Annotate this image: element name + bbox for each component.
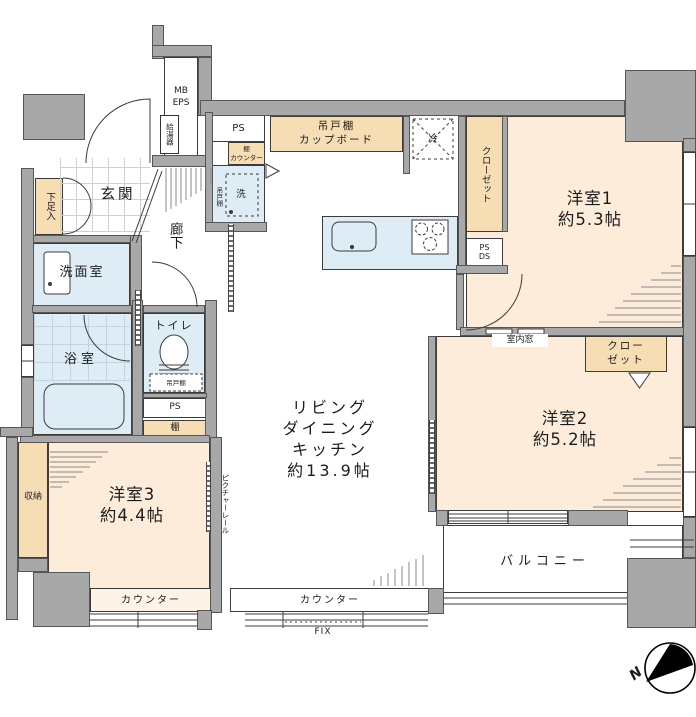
kitchen-counter xyxy=(322,216,458,270)
window-room2-balcony xyxy=(448,510,568,524)
wall-step-left xyxy=(0,427,33,437)
cupboard-label: 吊戸棚カップボード xyxy=(270,118,403,150)
wall-left-upper xyxy=(21,168,34,345)
closet1-label: クローゼット xyxy=(468,120,501,228)
shoe-cabinet-label: 下足入 xyxy=(37,180,61,233)
ps-mid-label: PS xyxy=(143,400,207,416)
wall-window-block1 xyxy=(197,610,212,630)
window-room1-right xyxy=(683,152,696,256)
compass-circle xyxy=(645,643,695,693)
ps-top-label: PS xyxy=(212,117,265,139)
pillar-top-right xyxy=(625,70,696,142)
toilet-label: トイレ xyxy=(147,318,201,334)
ldk-label: リビングダイニングキッチン約13.9帖 xyxy=(250,394,410,486)
window-room2-right xyxy=(683,427,696,517)
fridge-label: 冷 xyxy=(421,128,445,150)
room2-label: 洋室2約5.2帖 xyxy=(470,404,660,454)
water-heater-label: 給湯器 xyxy=(160,115,179,154)
wall-right-b xyxy=(683,256,696,427)
bathroom-tiles xyxy=(34,315,130,381)
wall-wash-bath xyxy=(32,305,132,313)
fix-label: FIX xyxy=(303,626,343,640)
interior-window-label: 室内窓 xyxy=(492,334,548,347)
wall-kitchen-stub xyxy=(403,116,410,174)
mb-eps-label: MBEPS xyxy=(164,84,198,112)
wall-genkan-wash xyxy=(33,235,133,243)
shelf-mid-label: 棚 xyxy=(143,421,207,437)
wall-top-main xyxy=(200,100,625,116)
wall-room2-balcony-right xyxy=(568,510,628,526)
pillar-top-left xyxy=(23,94,85,140)
balcony-label: バルコニー xyxy=(473,551,617,573)
wall-closet1-left xyxy=(458,116,466,272)
picture-rail-strip xyxy=(206,462,211,532)
storage-label: 収納 xyxy=(15,490,51,506)
ps-ds-label: PSDS xyxy=(466,238,503,266)
toilet-door-arc xyxy=(152,262,197,307)
bathroom-label: 浴室 xyxy=(50,350,112,370)
hanging-shelf-laundry-label: 吊戸棚 xyxy=(212,175,225,219)
hatch-ldk-fan xyxy=(374,555,423,586)
wall-toilet-top xyxy=(143,305,205,313)
room3-label: 洋室3約4.4帖 xyxy=(58,480,206,530)
wall-room2-balcony-left xyxy=(436,510,448,526)
counter-ldk-label: カウンター xyxy=(240,590,420,610)
entrance-door-arc xyxy=(86,99,150,163)
compass-north-label: N xyxy=(622,660,650,688)
counter-room3-label: カウンター xyxy=(95,590,207,610)
wall-right-c xyxy=(683,517,696,558)
washroom-label: 洗面室 xyxy=(40,263,124,283)
open-triangle-right xyxy=(266,164,279,178)
compass xyxy=(645,643,695,693)
wall-nook-left xyxy=(456,274,464,330)
shelf-counter-label: 棚カウンター xyxy=(227,142,266,165)
closet2-label: クローゼット xyxy=(587,338,665,370)
wall-right-a xyxy=(683,138,696,152)
hallway-label: 廊下 xyxy=(160,210,188,260)
window-bath-left xyxy=(21,345,34,377)
wall-genkan-top xyxy=(152,155,212,167)
room1-label: 洋室1約5.3帖 xyxy=(500,184,680,234)
wall-toilet-bottom xyxy=(143,393,207,398)
pillar-bottom-left xyxy=(33,572,90,627)
compass-needle xyxy=(646,644,693,682)
wall-under-storage xyxy=(18,558,48,572)
washer-label: 洗 xyxy=(231,187,251,204)
sliding-door-room2 xyxy=(429,420,435,494)
sliding-door-bathwall xyxy=(135,290,141,346)
sliding-door-hall-ldk xyxy=(228,224,234,312)
wall-toilet-right xyxy=(205,300,217,440)
room3-window-lines xyxy=(90,612,197,628)
wall-left-lower xyxy=(6,437,18,620)
hanging-shelf-toilet-label: 吊戸棚 xyxy=(150,376,202,390)
picture-rail-label: ピクチャーレール xyxy=(217,450,233,558)
wall-under-psds xyxy=(456,265,508,274)
floor-plan: MBEPS 給湯器 PS 棚カウンター 吊戸棚 洗 吊戸棚カップボード 冷 クロ… xyxy=(0,0,696,717)
wall-ldk-balcony xyxy=(428,588,444,614)
pillar-bottom-right xyxy=(627,558,696,628)
genkan-label: 玄関 xyxy=(86,184,150,206)
wall-notch-h xyxy=(152,45,212,57)
wall-laundry-bottom xyxy=(205,222,267,232)
